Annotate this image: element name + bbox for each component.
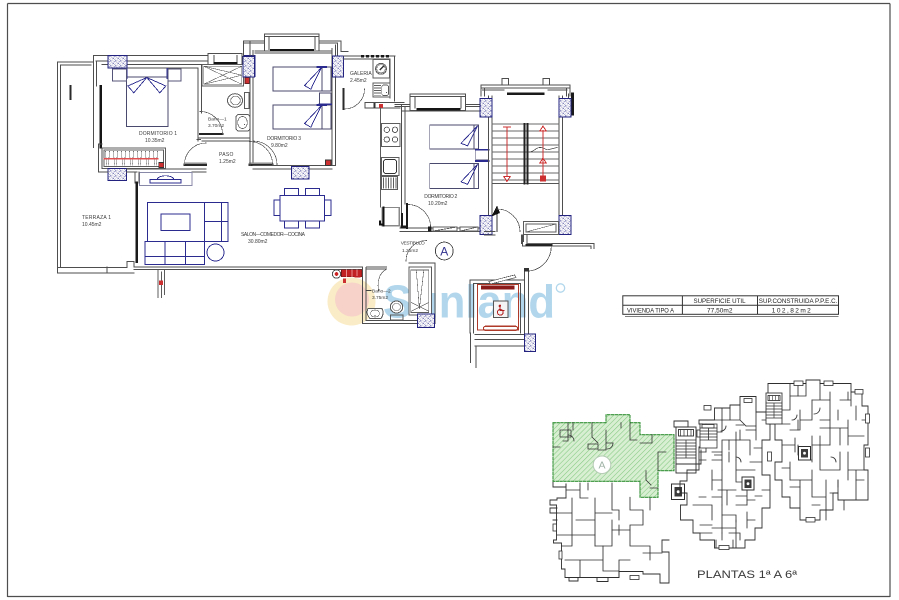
svg-text:GALERIA: GALERIA	[350, 71, 372, 77]
svg-text:10.20m2: 10.20m2	[428, 201, 448, 207]
svg-text:1.25m2: 1.25m2	[219, 159, 236, 165]
svg-text:3.70m2: 3.70m2	[208, 123, 224, 129]
svg-text:Baño—2: Baño—2	[372, 289, 391, 295]
svg-text:10.35m2: 10.35m2	[145, 138, 165, 144]
svg-text:DORMITORIO 1: DORMITORIO 1	[139, 131, 177, 137]
svg-text:2.45m2: 2.45m2	[350, 78, 367, 84]
svg-text:SALON—COMEDOR—COCINA: SALON—COMEDOR—COCINA	[241, 232, 306, 238]
svg-text:77,50m2: 77,50m2	[707, 308, 733, 315]
svg-text:DORMITORIO 2: DORMITORIO 2	[424, 194, 457, 200]
svg-text:3.75m2: 3.75m2	[372, 295, 388, 301]
svg-text:SUPERFICIE UTIL: SUPERFICIE UTIL	[694, 298, 746, 305]
svg-text:TERRAZA 1: TERRAZA 1	[82, 215, 111, 221]
svg-text:Baño—1: Baño—1	[208, 117, 227, 123]
svg-text:PLANTAS 1ª A 6ª: PLANTAS 1ª A 6ª	[697, 569, 798, 581]
svg-text:SUP.CONSTRUIDA P.P.E.C.: SUP.CONSTRUIDA P.P.E.C.	[759, 298, 838, 305]
svg-text:102,82m2: 102,82m2	[772, 308, 811, 315]
svg-text:DORMITORIO 3: DORMITORIO 3	[267, 136, 301, 142]
svg-text:A: A	[598, 460, 605, 472]
svg-text:VIVIENDA TIPO A: VIVIENDA TIPO A	[627, 308, 675, 315]
svg-text:10.45m2: 10.45m2	[82, 222, 102, 228]
svg-text:PASO: PASO	[219, 152, 234, 158]
svg-text:A: A	[440, 244, 448, 258]
svg-text:9.80m2: 9.80m2	[271, 143, 288, 149]
svg-text:30.80m2: 30.80m2	[248, 239, 268, 245]
